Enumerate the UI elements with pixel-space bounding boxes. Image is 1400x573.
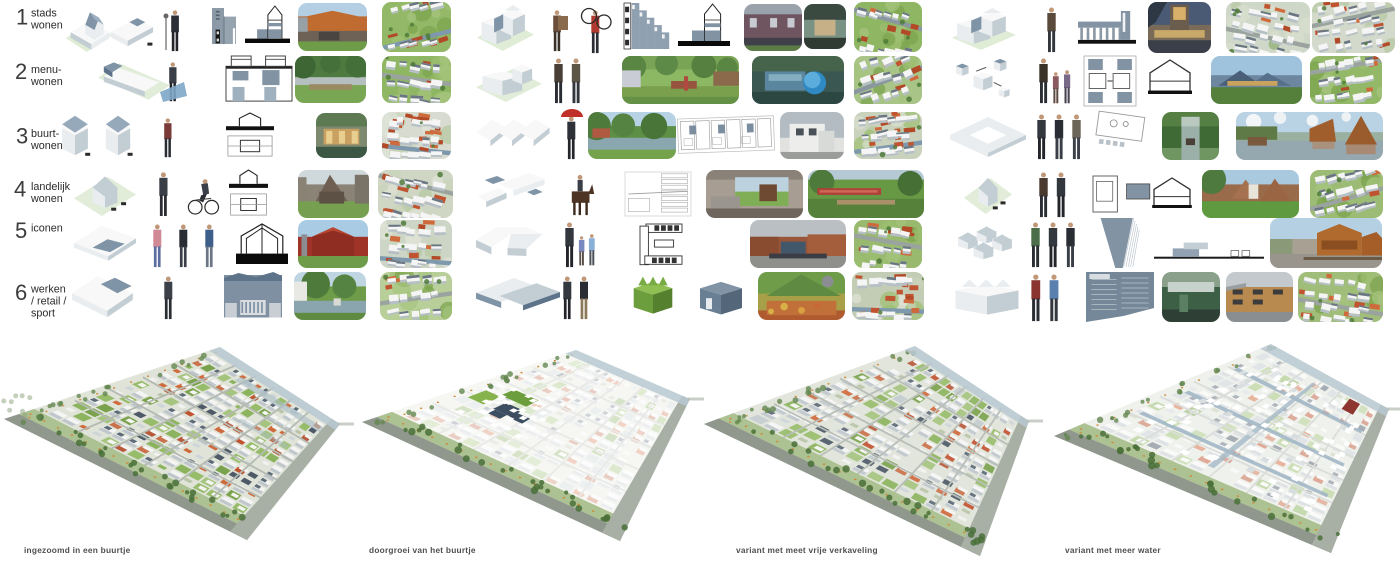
svg-text:5: 5 [15,218,27,243]
svg-text:werken: werken [30,284,66,296]
svg-text:variant met meet vrije verkave: variant met meet vrije verkaveling [736,545,878,555]
svg-text:wonen: wonen [30,140,63,152]
svg-text:buurt-: buurt- [31,128,60,140]
svg-text:wonen: wonen [30,193,63,205]
svg-text:iconen: iconen [31,223,63,235]
svg-text:variant met meer water: variant met meer water [1065,545,1161,555]
svg-text:ingezoomd in een buurtje: ingezoomd in een buurtje [24,545,131,555]
svg-text:3: 3 [16,124,28,149]
svg-text:/ retail /: / retail / [31,296,66,308]
svg-text:landelijk: landelijk [31,181,71,193]
svg-text:4: 4 [14,177,26,202]
svg-text:1: 1 [16,5,28,30]
svg-text:menu-: menu- [31,64,62,76]
svg-text:wonen: wonen [30,76,63,88]
svg-text:stads: stads [31,8,57,20]
svg-text:doorgroei van het buurtje: doorgroei van het buurtje [369,545,476,555]
svg-text:6: 6 [15,280,27,305]
svg-text:2: 2 [15,59,27,84]
svg-text:sport: sport [31,308,55,320]
svg-text:wonen: wonen [30,20,63,32]
